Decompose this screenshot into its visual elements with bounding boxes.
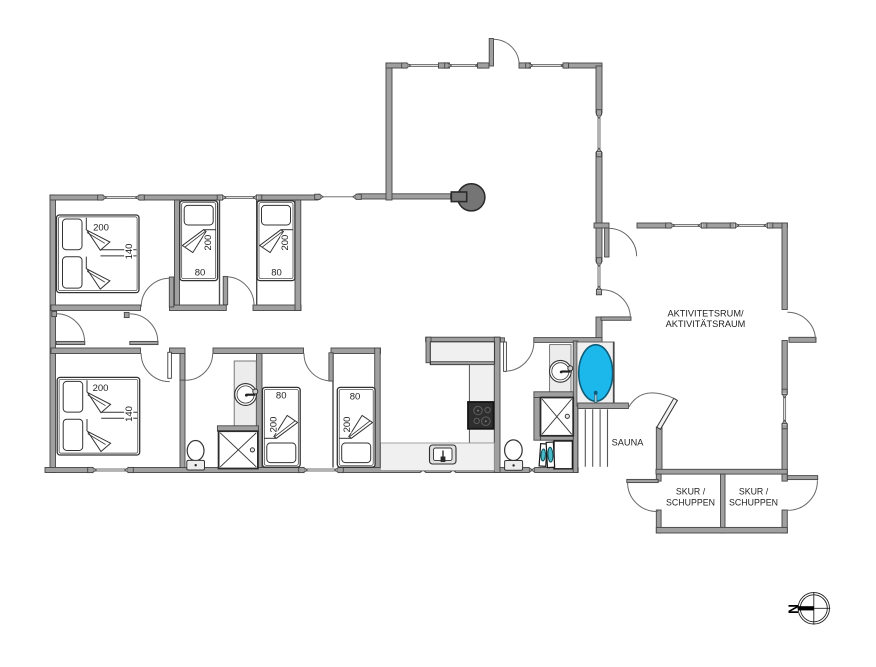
svg-text:200: 200 [342, 417, 353, 433]
svg-text:SCHUPPEN: SCHUPPEN [666, 497, 715, 507]
svg-text:SCHUPPEN: SCHUPPEN [729, 497, 778, 507]
svg-text:80: 80 [271, 268, 282, 279]
svg-text:80: 80 [195, 268, 206, 279]
svg-text:200: 200 [269, 417, 280, 433]
svg-text:200: 200 [93, 383, 109, 394]
svg-text:AKTIVITÄTSRAUM: AKTIVITÄTSRAUM [666, 319, 746, 329]
svg-text:140: 140 [124, 244, 135, 260]
svg-text:SAUNA: SAUNA [612, 437, 645, 447]
svg-text:80: 80 [276, 391, 287, 402]
svg-text:200: 200 [93, 223, 109, 234]
svg-text:SKUR /: SKUR / [676, 486, 706, 496]
svg-text:200: 200 [203, 235, 214, 251]
svg-text:140: 140 [124, 406, 135, 422]
svg-text:80: 80 [350, 392, 361, 403]
svg-text:AKTIVITETSRUM/: AKTIVITETSRUM/ [667, 308, 744, 318]
svg-text:200: 200 [280, 235, 291, 251]
svg-text:SKUR /: SKUR / [739, 486, 769, 496]
svg-text:N: N [786, 604, 801, 614]
